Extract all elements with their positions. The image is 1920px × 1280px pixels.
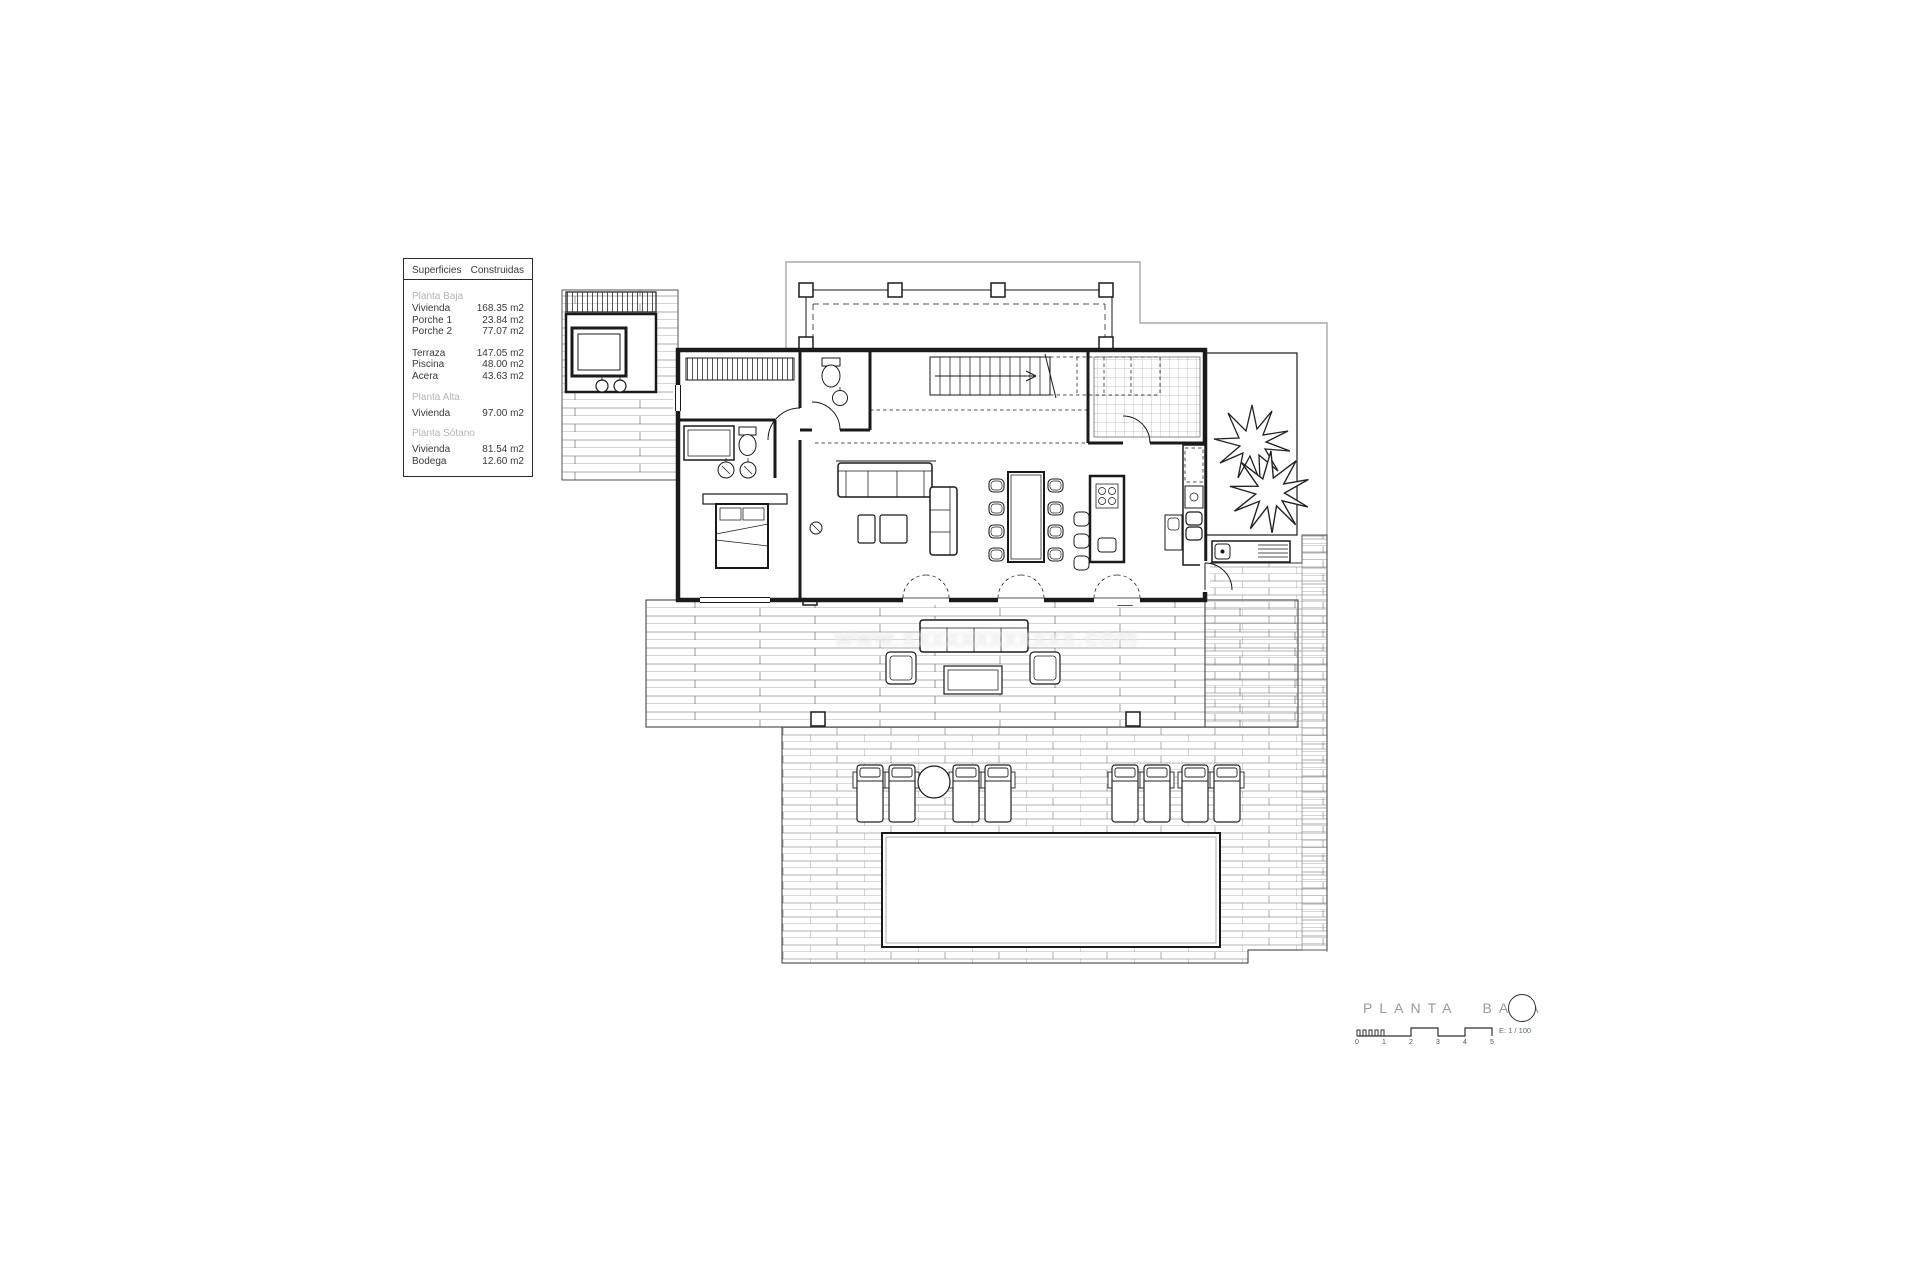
round-table-icon [918,766,950,798]
row-label: Vivienda [412,303,450,315]
table-row: Piscina 48.00 m2 [412,359,524,371]
row-label: Porche 2 [412,326,452,338]
sun-lounger-icon [949,765,983,822]
sun-lounger-icon [981,765,1015,822]
title-circle-icon [1508,994,1536,1022]
floor-plan-sheet: .ln{fill:none;stroke:#1a1a1a;} .fw{fill:… [0,0,1920,1280]
row-label: Porche 1 [412,315,452,327]
house [673,350,1232,605]
table-row: Terraza 147.05 m2 [412,348,524,360]
entry-court [1205,353,1327,562]
stool-icon [1074,556,1089,570]
sun-lounger-icon [1140,765,1174,822]
surfaces-table: Superficies Construidas Planta Baja Vivi… [403,258,533,477]
sofa-icon [838,463,932,497]
row-label: Vivienda [412,408,450,420]
sofa-icon [930,487,957,555]
floor-plan-drawing: .ln{fill:none;stroke:#1a1a1a;} .fw{fill:… [0,0,1920,1280]
table-row: Bodega 12.60 m2 [412,456,524,468]
upper-floor-outline [799,283,1113,350]
row-value: 168.35 m2 [477,303,524,315]
table-row: Porche 1 23.84 m2 [412,315,524,327]
row-label: Piscina [412,359,444,371]
pool [882,833,1220,947]
ottoman-icon [880,515,907,543]
row-label: Bodega [412,456,446,468]
dining-table-icon [1008,472,1044,562]
sink-icon [833,391,848,406]
table-row: Vivienda 97.00 m2 [412,408,524,420]
bbq-unit-icon [572,328,626,376]
col-superficies: Superficies [412,265,461,276]
section-planta-baja: Planta Baja [412,291,524,303]
ottoman-icon [858,515,875,543]
sun-lounger-icon [1178,765,1212,822]
table-row: Porche 2 77.07 m2 [412,326,524,338]
table-row: Vivienda 81.54 m2 [412,444,524,456]
surfaces-table-header: Superficies Construidas [404,259,532,280]
scale-tick-0: 0 [1352,1039,1362,1046]
row-label: Vivienda [412,444,450,456]
row-value: 81.54 m2 [482,444,524,456]
fixture-icon [614,380,626,392]
row-value: 147.05 m2 [477,348,524,360]
tiled-room-floor [1094,357,1200,437]
outdoor-counter [1212,541,1290,562]
row-value: 77.07 m2 [482,326,524,338]
sun-lounger-icon [1210,765,1244,822]
col-construidas: Construidas [471,265,524,276]
shower-icon [684,426,734,460]
scale-tick-2: 2 [1406,1039,1416,1046]
scale-label: E: 1 / 100 [1499,1026,1531,1035]
table-row: Acera 43.63 m2 [412,371,524,383]
wardrobe-icon [686,358,794,380]
stool-icon [1074,512,1089,526]
table-row: Vivienda 168.35 m2 [412,303,524,315]
west-window [673,385,683,411]
stool-icon [1074,534,1089,548]
row-label: Terraza [412,348,445,360]
sun-lounger-icon [1108,765,1142,822]
sun-lounger-icon [853,765,887,822]
scale-tick-4: 4 [1460,1039,1470,1046]
row-value: 43.63 m2 [482,371,524,383]
fixture-icon [596,380,608,392]
pillar [811,712,825,726]
pillar [1126,712,1140,726]
scale-tick-5: 5 [1487,1039,1497,1046]
porch-left [562,290,678,480]
scale-tick-3: 3 [1433,1039,1443,1046]
row-value: 23.84 m2 [482,315,524,327]
row-value: 48.00 m2 [482,359,524,371]
section-planta-sotano: Planta Sótano [412,428,524,440]
row-value: 97.00 m2 [482,408,524,420]
toilet-icon [739,427,756,456]
pergola-hatch [566,292,656,312]
toilet-icon [822,365,840,387]
sun-lounger-icon [885,765,919,822]
row-value: 12.60 m2 [482,456,524,468]
scale-tick-1: 1 [1379,1039,1389,1046]
section-planta-alta: Planta Alta [412,392,524,404]
row-label: Acera [412,371,438,383]
side-walkway [1302,535,1327,950]
terrace [646,592,1298,727]
